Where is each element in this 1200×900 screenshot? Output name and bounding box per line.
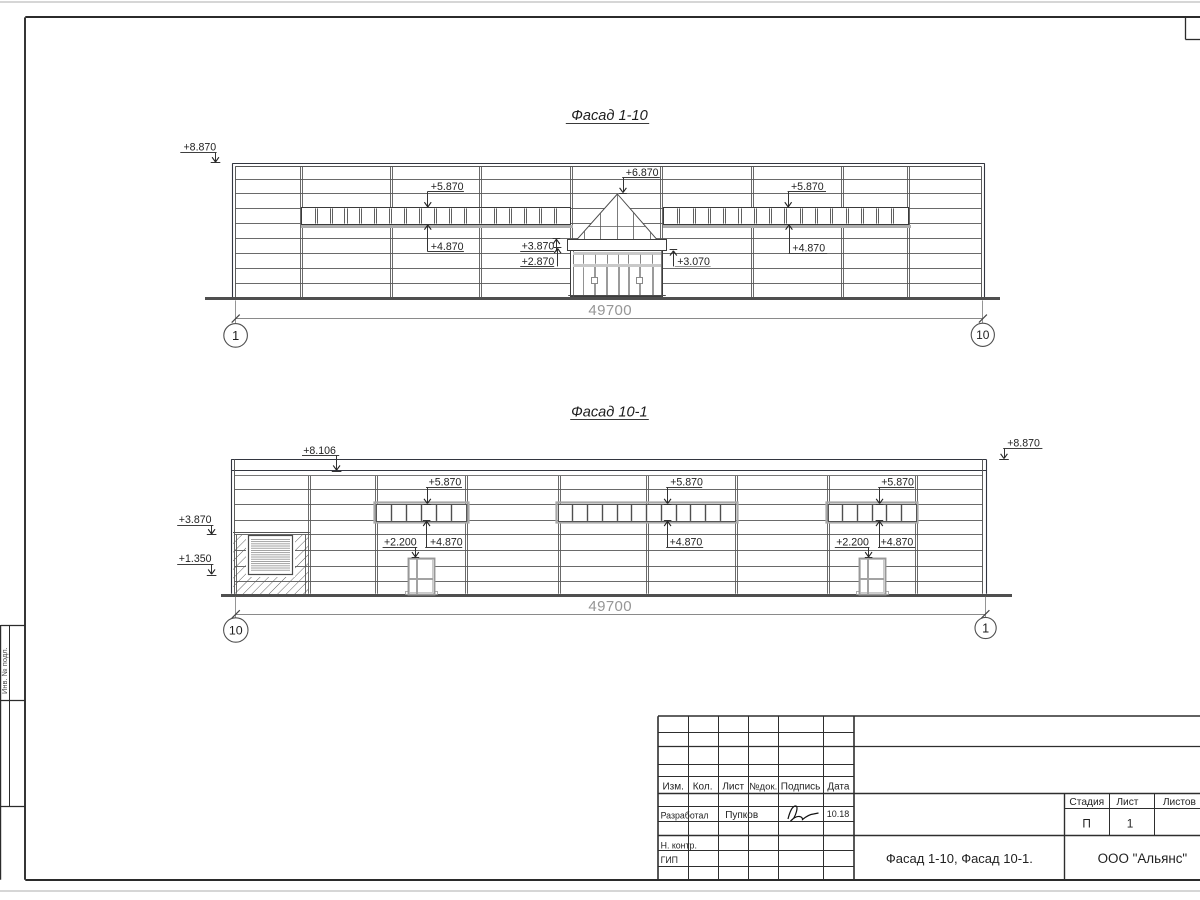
svg-text:+5.870: +5.870 [429, 477, 462, 489]
svg-text:Фасад 1-10, Фасад 10-1.: Фасад 1-10, Фасад 10-1. [886, 851, 1033, 866]
svg-text:+2.200: +2.200 [836, 536, 869, 548]
svg-text:Н. контр.: Н. контр. [661, 841, 697, 851]
svg-text:Лист: Лист [722, 781, 744, 792]
svg-text:+8.106: +8.106 [303, 445, 336, 457]
svg-text:1: 1 [232, 328, 239, 343]
svg-text:+5.870: +5.870 [881, 477, 914, 489]
svg-text:Изм.: Изм. [662, 781, 683, 792]
svg-text:ООО "Альянс": ООО "Альянс" [1098, 851, 1188, 866]
svg-text:49700: 49700 [588, 302, 632, 319]
svg-text:Фасад 1-10: Фасад 1-10 [571, 108, 647, 124]
svg-text:10.18: 10.18 [827, 809, 850, 819]
svg-text:+3.870: +3.870 [179, 514, 212, 526]
svg-text:1: 1 [1127, 817, 1134, 831]
svg-text:+4.870: +4.870 [881, 536, 914, 548]
svg-text:+3.870: +3.870 [522, 241, 555, 253]
svg-text:10: 10 [229, 624, 243, 638]
svg-text:+2.870: +2.870 [522, 256, 555, 268]
svg-text:+4.870: +4.870 [431, 241, 464, 253]
svg-text:+8.870: +8.870 [184, 142, 217, 154]
svg-text:+5.870: +5.870 [431, 181, 464, 193]
svg-text:Дата: Дата [827, 781, 850, 792]
svg-text:Инв. № подл.: Инв. № подл. [0, 647, 9, 694]
svg-text:10: 10 [976, 328, 990, 342]
svg-text:Фасад 10-1: Фасад 10-1 [571, 405, 647, 421]
svg-text:+2.200: +2.200 [384, 536, 417, 548]
svg-text:ГИП: ГИП [661, 855, 678, 865]
svg-text:+5.870: +5.870 [791, 181, 824, 193]
svg-text:49700: 49700 [588, 598, 632, 615]
svg-text:+5.870: +5.870 [670, 477, 703, 489]
svg-text:Листов: Листов [1163, 797, 1196, 808]
svg-text:+4.870: +4.870 [670, 536, 703, 548]
svg-text:+8.870: +8.870 [1007, 437, 1040, 449]
svg-text:Кол.: Кол. [693, 781, 713, 792]
svg-text:Пупков: Пупков [725, 810, 758, 821]
svg-text:1: 1 [982, 622, 989, 636]
svg-text:Разработал: Разработал [661, 810, 709, 820]
svg-text:+1.350: +1.350 [179, 553, 212, 565]
svg-text:Стадия: Стадия [1069, 797, 1104, 808]
svg-text:+3.070: +3.070 [677, 256, 710, 268]
svg-text:П: П [1082, 817, 1090, 831]
svg-text:+4.870: +4.870 [792, 243, 825, 255]
svg-text:+4.870: +4.870 [430, 536, 463, 548]
svg-text:Лист: Лист [1116, 797, 1138, 808]
svg-text:Подпись: Подпись [781, 781, 821, 792]
svg-text:№док.: №док. [749, 781, 777, 792]
